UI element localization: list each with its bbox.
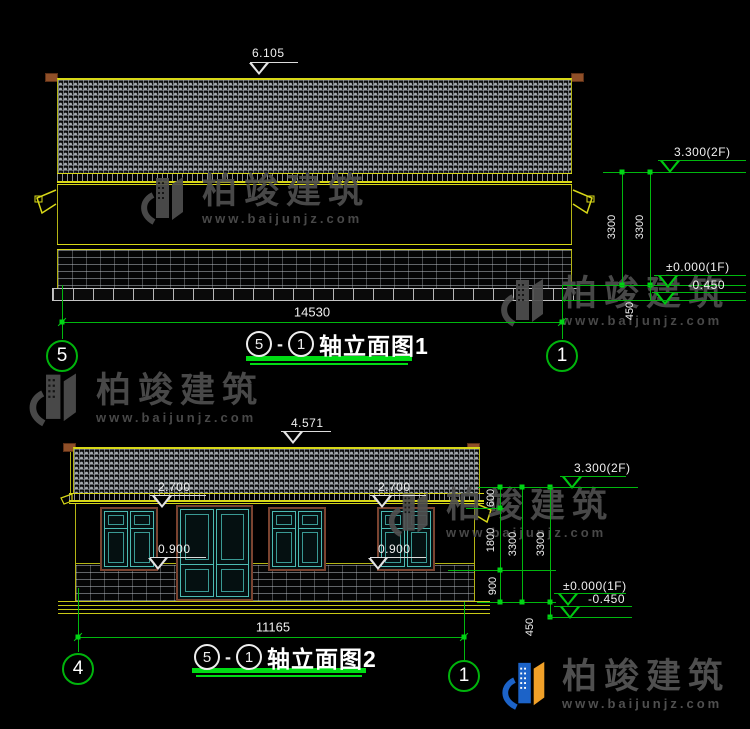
ridge-level-label-1: 6.105 — [252, 46, 285, 60]
downspout-left-icon — [58, 492, 74, 506]
dim-node-icon — [560, 320, 565, 325]
level-triangle-icon — [249, 63, 269, 75]
dim-node-icon — [462, 635, 467, 640]
dim-node-icon — [520, 485, 525, 490]
lattice-window-2 — [268, 507, 326, 571]
window-dim-label: 1800 — [485, 528, 497, 552]
watermark-brand: 柏竣建筑 — [446, 488, 614, 525]
extension-line — [464, 602, 465, 660]
level-triangle-icon — [152, 496, 172, 508]
window-head-level-a: 2.700 — [158, 480, 191, 494]
dimension-line-width-1 — [62, 322, 562, 323]
window-head-level-b: 2.700 — [378, 480, 411, 494]
axis-bubble-5: 5 — [46, 340, 78, 372]
watermark-logo-icon — [138, 172, 192, 228]
dim-node-icon — [520, 600, 525, 605]
watermark-url: www.baijunjz.com — [202, 211, 370, 226]
window-sash — [272, 511, 296, 567]
window-sill-level-b: 0.900 — [378, 542, 411, 556]
watermark-logo-icon — [26, 368, 86, 430]
title-axis-bubble: 1 — [288, 331, 314, 357]
axis-bubble-1: 1 — [546, 340, 578, 372]
title-text-1: 轴立面图1 — [319, 327, 429, 361]
story-dim-label: 3300 — [634, 215, 646, 239]
width-dim-label-1: 14530 — [294, 305, 330, 320]
drawing2-title: 5 - 1 轴立面图2 — [194, 640, 377, 674]
watermark-url: www.baijunjz.com — [96, 410, 264, 425]
axis-bubble-4: 4 — [62, 653, 94, 685]
vert-dim-line — [500, 487, 501, 602]
level-minus450-label-1: -0.450 — [688, 278, 725, 292]
dim-node-icon — [498, 568, 503, 573]
level-triangle-icon — [655, 293, 675, 305]
level-triangle-icon — [148, 558, 168, 570]
title-axis-bubble: 5 — [246, 331, 272, 357]
level-triangle-icon — [368, 558, 388, 570]
plinth-dim-label-2: 450 — [524, 618, 536, 636]
title-axis-bubble: 5 — [194, 644, 220, 670]
base-steps-2 — [58, 601, 490, 616]
vert-dim-line — [650, 285, 651, 300]
dim-node-icon — [498, 506, 503, 511]
extension-line — [62, 285, 63, 339]
watermark-brand: 柏竣建筑 — [202, 174, 370, 211]
watermark-1: 柏竣建筑 www.baijunjz.com — [138, 172, 370, 228]
watermark-url: www.baijunjz.com — [562, 313, 730, 328]
footer-brand: 柏竣建筑 — [562, 659, 730, 696]
ridge-cap-right — [571, 73, 584, 82]
eave-bracket-left-icon — [33, 188, 58, 215]
extension-line — [562, 285, 563, 339]
story-dim-label: 3300 — [606, 215, 618, 239]
level-0000-1f-label-2: ±0.000(1F) — [563, 579, 627, 593]
story-dim-label: 3300 — [535, 532, 547, 556]
door-leaf — [216, 509, 250, 597]
title-dash: - — [225, 647, 231, 668]
watermark-3: 柏竣建筑 www.baijunjz.com — [26, 368, 264, 430]
roof-tile-hatch-2 — [73, 447, 480, 493]
level-triangle-icon — [372, 496, 392, 508]
window-sash — [104, 511, 128, 567]
vert-dim-line — [650, 172, 651, 285]
footer-logo-icon — [500, 656, 552, 714]
title-underline-thin — [250, 363, 408, 365]
extension-line — [477, 602, 556, 603]
extension-line — [78, 588, 79, 652]
dim-node-icon — [548, 600, 553, 605]
level-3300-2f-label-1: 3.300(2F) — [674, 145, 731, 159]
parapet-dim-label: 600 — [485, 489, 497, 507]
level-line-grade-1 — [562, 300, 746, 301]
ridge-level-label-2: 4.571 — [291, 416, 324, 430]
vert-dim-line — [622, 172, 623, 285]
brick-wall-hatch-1 — [57, 250, 572, 288]
level-line-grade-2 — [548, 617, 632, 618]
dimension-line-width-2 — [78, 637, 464, 638]
dim-node-icon — [498, 485, 503, 490]
vert-dim-line — [522, 487, 523, 602]
level-line-2f-2 — [540, 487, 638, 488]
title-axis-bubble: 1 — [236, 644, 262, 670]
window-sash — [298, 511, 322, 567]
title-text-2: 轴立面图2 — [267, 640, 377, 674]
dim-node-icon — [498, 600, 503, 605]
cad-elevation-sheet: 6.105 14530 5 1 5 - 1 轴立面图1 3.300(2F) — [0, 0, 750, 729]
dim-node-icon — [60, 320, 65, 325]
sill-dim-label: 900 — [487, 577, 499, 595]
dim-node-icon — [76, 635, 81, 640]
vert-dim-line — [550, 487, 551, 617]
eave-bracket-right-icon — [571, 188, 596, 215]
level-triangle-icon — [558, 594, 578, 606]
title-dash: - — [277, 334, 283, 355]
plinth-dim-label-1: 450 — [624, 302, 636, 320]
level-0000-1f-label-1: ±0.000(1F) — [666, 260, 730, 274]
window-sill-level-a: 0.900 — [158, 542, 191, 556]
width-dim-label-2: 11165 — [256, 620, 290, 635]
gable-trim-left — [70, 452, 71, 493]
watermark-url: www.baijunjz.com — [446, 525, 614, 540]
footer-logo: 柏竣建筑 www.baijunjz.com — [500, 656, 730, 714]
level-3300-2f-label-2: 3.300(2F) — [574, 461, 631, 475]
dim-node-icon — [620, 170, 625, 175]
drawing1-title: 5 - 1 轴立面图1 — [246, 327, 429, 361]
roof-tile-hatch-1 — [57, 78, 572, 173]
axis-bubble-1b: 1 — [448, 660, 480, 692]
dim-node-icon — [648, 170, 653, 175]
title-underline-thin — [196, 675, 362, 677]
level-minus450-label-2: -0.450 — [588, 592, 625, 606]
level-triangle-icon — [658, 276, 678, 288]
story-dim-label: 3300 — [507, 532, 519, 556]
footer-url: www.baijunjz.com — [562, 696, 730, 711]
watermark-brand: 柏竣建筑 — [96, 373, 264, 410]
level-triangle-icon — [283, 432, 303, 444]
